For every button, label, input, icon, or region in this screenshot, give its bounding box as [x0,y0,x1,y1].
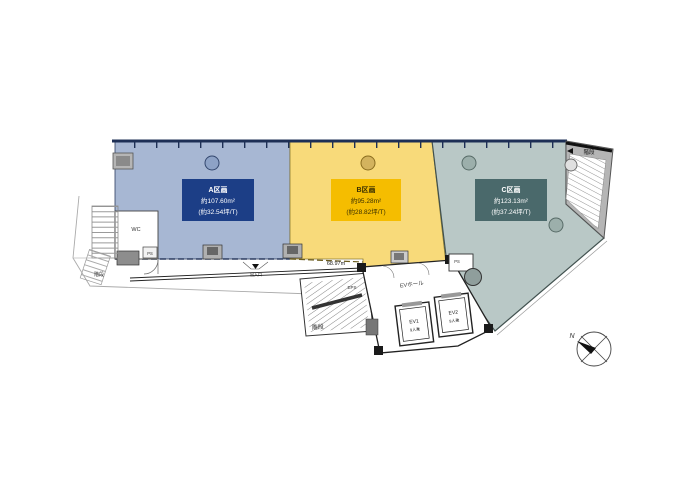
eps-label: EPS [347,285,356,290]
unit-c-label-plate: C区画 約123.13m² (約37.24坪/T) [475,179,547,221]
ev1-capacity-label: 9人乗 [410,325,421,332]
floor-plan-page: WC PS 階段 68.97m 階段 EPS EVホール [0,0,680,480]
unit-a-name: A区画 [208,186,227,194]
dimension-label: 68.97m [327,261,346,267]
unit-c-name: C区画 [501,186,520,194]
unit-a-label-plate: A区画 約107.60m² (約32.54坪/T) [182,179,254,221]
unit-c-tsubo: (約37.24坪/T) [491,207,530,216]
unit-b-name: B区画 [356,186,375,194]
bottom-stair: 階段 [300,273,373,336]
unit-a-area: 約107.60m² [201,196,236,205]
unit-c-area: 約123.13m² [494,196,529,205]
entrance-annotation: 出入口 [243,262,268,277]
left-annex: WC PS [115,211,158,274]
compass-north-label: N [569,333,575,340]
floor-plan-drawing: WC PS 階段 68.97m 階段 EPS EVホール [0,0,680,480]
entrance-label: 出入口 [250,271,262,277]
left-external-stair: 階段 [80,206,118,285]
ev1-label: EV1 [409,318,419,325]
top-right-stair-label: 階段 [583,148,595,156]
unit-a-tsubo: (約32.54坪/T) [198,207,237,216]
wc-label: WC [131,227,140,233]
compass: N [569,332,611,366]
ev2-label: EV2 [448,310,458,317]
ps-left-label: PS [147,251,153,256]
ev2-capacity-label: 9人乗 [449,316,460,323]
unit-b-label-plate: B区画 約95.28m² (約28.82坪/T) [331,179,401,221]
unit-b-tsubo: (約28.82坪/T) [346,207,385,216]
unit-b-area: 約95.28m² [351,196,382,205]
left-stair-label: 階段 [94,271,104,278]
exterior-unit-box [113,153,133,169]
ps-right-label: PS [454,259,460,264]
